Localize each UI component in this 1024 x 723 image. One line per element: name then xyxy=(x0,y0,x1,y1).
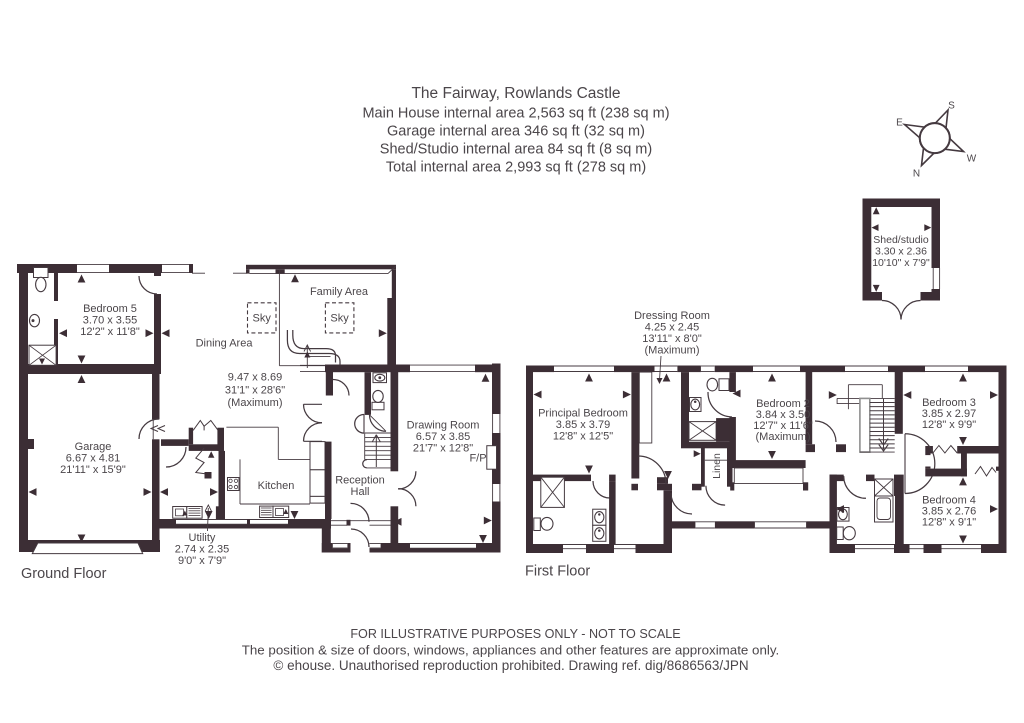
svg-text:12'8" x 9'1": 12'8" x 9'1" xyxy=(922,517,976,529)
svg-text:First Floor: First Floor xyxy=(525,564,590,580)
svg-text:13'11" x 8'0": 13'11" x 8'0" xyxy=(642,333,702,345)
svg-text:Linen: Linen xyxy=(711,453,723,479)
svg-text:21'7" x 12'8": 21'7" x 12'8" xyxy=(413,443,473,455)
svg-text:4.25 x 2.45: 4.25 x 2.45 xyxy=(645,322,699,334)
svg-text:Total internal area 2,993 sq f: Total internal area 2,993 sq ft (278 sq … xyxy=(386,160,646,176)
svg-text:Sky: Sky xyxy=(253,313,272,325)
svg-text:Sky: Sky xyxy=(330,313,349,325)
svg-text:12'8" x 12'5": 12'8" x 12'5" xyxy=(553,431,613,443)
svg-text:Utility: Utility xyxy=(189,532,216,544)
svg-text:9'0" x 7'9": 9'0" x 7'9" xyxy=(178,555,226,567)
svg-text:Bedroom 5: Bedroom 5 xyxy=(83,303,137,315)
svg-text:3.30 x 2.36: 3.30 x 2.36 xyxy=(875,246,927,258)
svg-text:2.74 x 2.35: 2.74 x 2.35 xyxy=(175,544,229,556)
svg-text:Family Area: Family Area xyxy=(310,286,369,298)
svg-text:9.47 x 8.69: 9.47 x 8.69 xyxy=(228,372,282,384)
svg-text:Shed/studio: Shed/studio xyxy=(873,234,929,246)
svg-text:3.70 x 3.55: 3.70 x 3.55 xyxy=(83,315,137,327)
svg-text:3.85 x 3.79: 3.85 x 3.79 xyxy=(556,419,610,431)
svg-text:Shed/Studio internal area 84 s: Shed/Studio internal area 84 sq ft (8 sq… xyxy=(380,142,652,158)
svg-text:6.57 x 3.85: 6.57 x 3.85 xyxy=(416,431,470,443)
svg-text:Dressing Room: Dressing Room xyxy=(634,310,710,322)
svg-text:Main House internal area 2,563: Main House internal area 2,563 sq ft (23… xyxy=(362,106,669,122)
svg-text:Dining Area: Dining Area xyxy=(196,338,254,350)
svg-text:(Maximum): (Maximum) xyxy=(228,397,283,409)
svg-text:The Fairway, Rowlands Castle: The Fairway, Rowlands Castle xyxy=(411,85,620,102)
svg-text:Drawing Room: Drawing Room xyxy=(407,420,480,432)
svg-text:W: W xyxy=(967,154,977,165)
svg-text:Ground Floor: Ground Floor xyxy=(21,566,107,582)
svg-text:N: N xyxy=(913,169,920,180)
svg-text:Garage internal area 346 sq ft: Garage internal area 346 sq ft (32 sq m) xyxy=(387,124,645,140)
svg-text:21'11" x 15'9": 21'11" x 15'9" xyxy=(60,464,126,476)
svg-text:Kitchen: Kitchen xyxy=(258,480,295,492)
svg-text:(Maximum): (Maximum) xyxy=(645,345,700,357)
svg-text:10'10" x 7'9": 10'10" x 7'9" xyxy=(872,257,930,269)
svg-text:12'8" x 9'9": 12'8" x 9'9" xyxy=(922,419,976,431)
svg-text:Hall: Hall xyxy=(351,486,370,498)
svg-text:(Maximum): (Maximum) xyxy=(756,431,811,443)
svg-text:© ehouse. Unauthorised reprodu: © ehouse. Unauthorised reproduction proh… xyxy=(273,658,748,673)
svg-text:FOR ILLUSTRATIVE PURPOSES ONLY: FOR ILLUSTRATIVE PURPOSES ONLY - NOT TO … xyxy=(350,627,680,641)
svg-text:Principal Bedroom: Principal Bedroom xyxy=(538,408,628,420)
svg-text:E: E xyxy=(896,118,903,129)
svg-text:Garage: Garage xyxy=(75,441,112,453)
svg-text:12'2" x 11'8": 12'2" x 11'8" xyxy=(80,326,140,338)
svg-text:The position & size of doors,: The position & size of doors, windows, a… xyxy=(242,643,780,658)
svg-text:S: S xyxy=(948,101,955,112)
svg-text:Reception: Reception xyxy=(335,475,385,487)
svg-text:6.67 x 4.81: 6.67 x 4.81 xyxy=(66,453,120,465)
svg-text:31'1" x 28'6": 31'1" x 28'6" xyxy=(225,385,285,397)
